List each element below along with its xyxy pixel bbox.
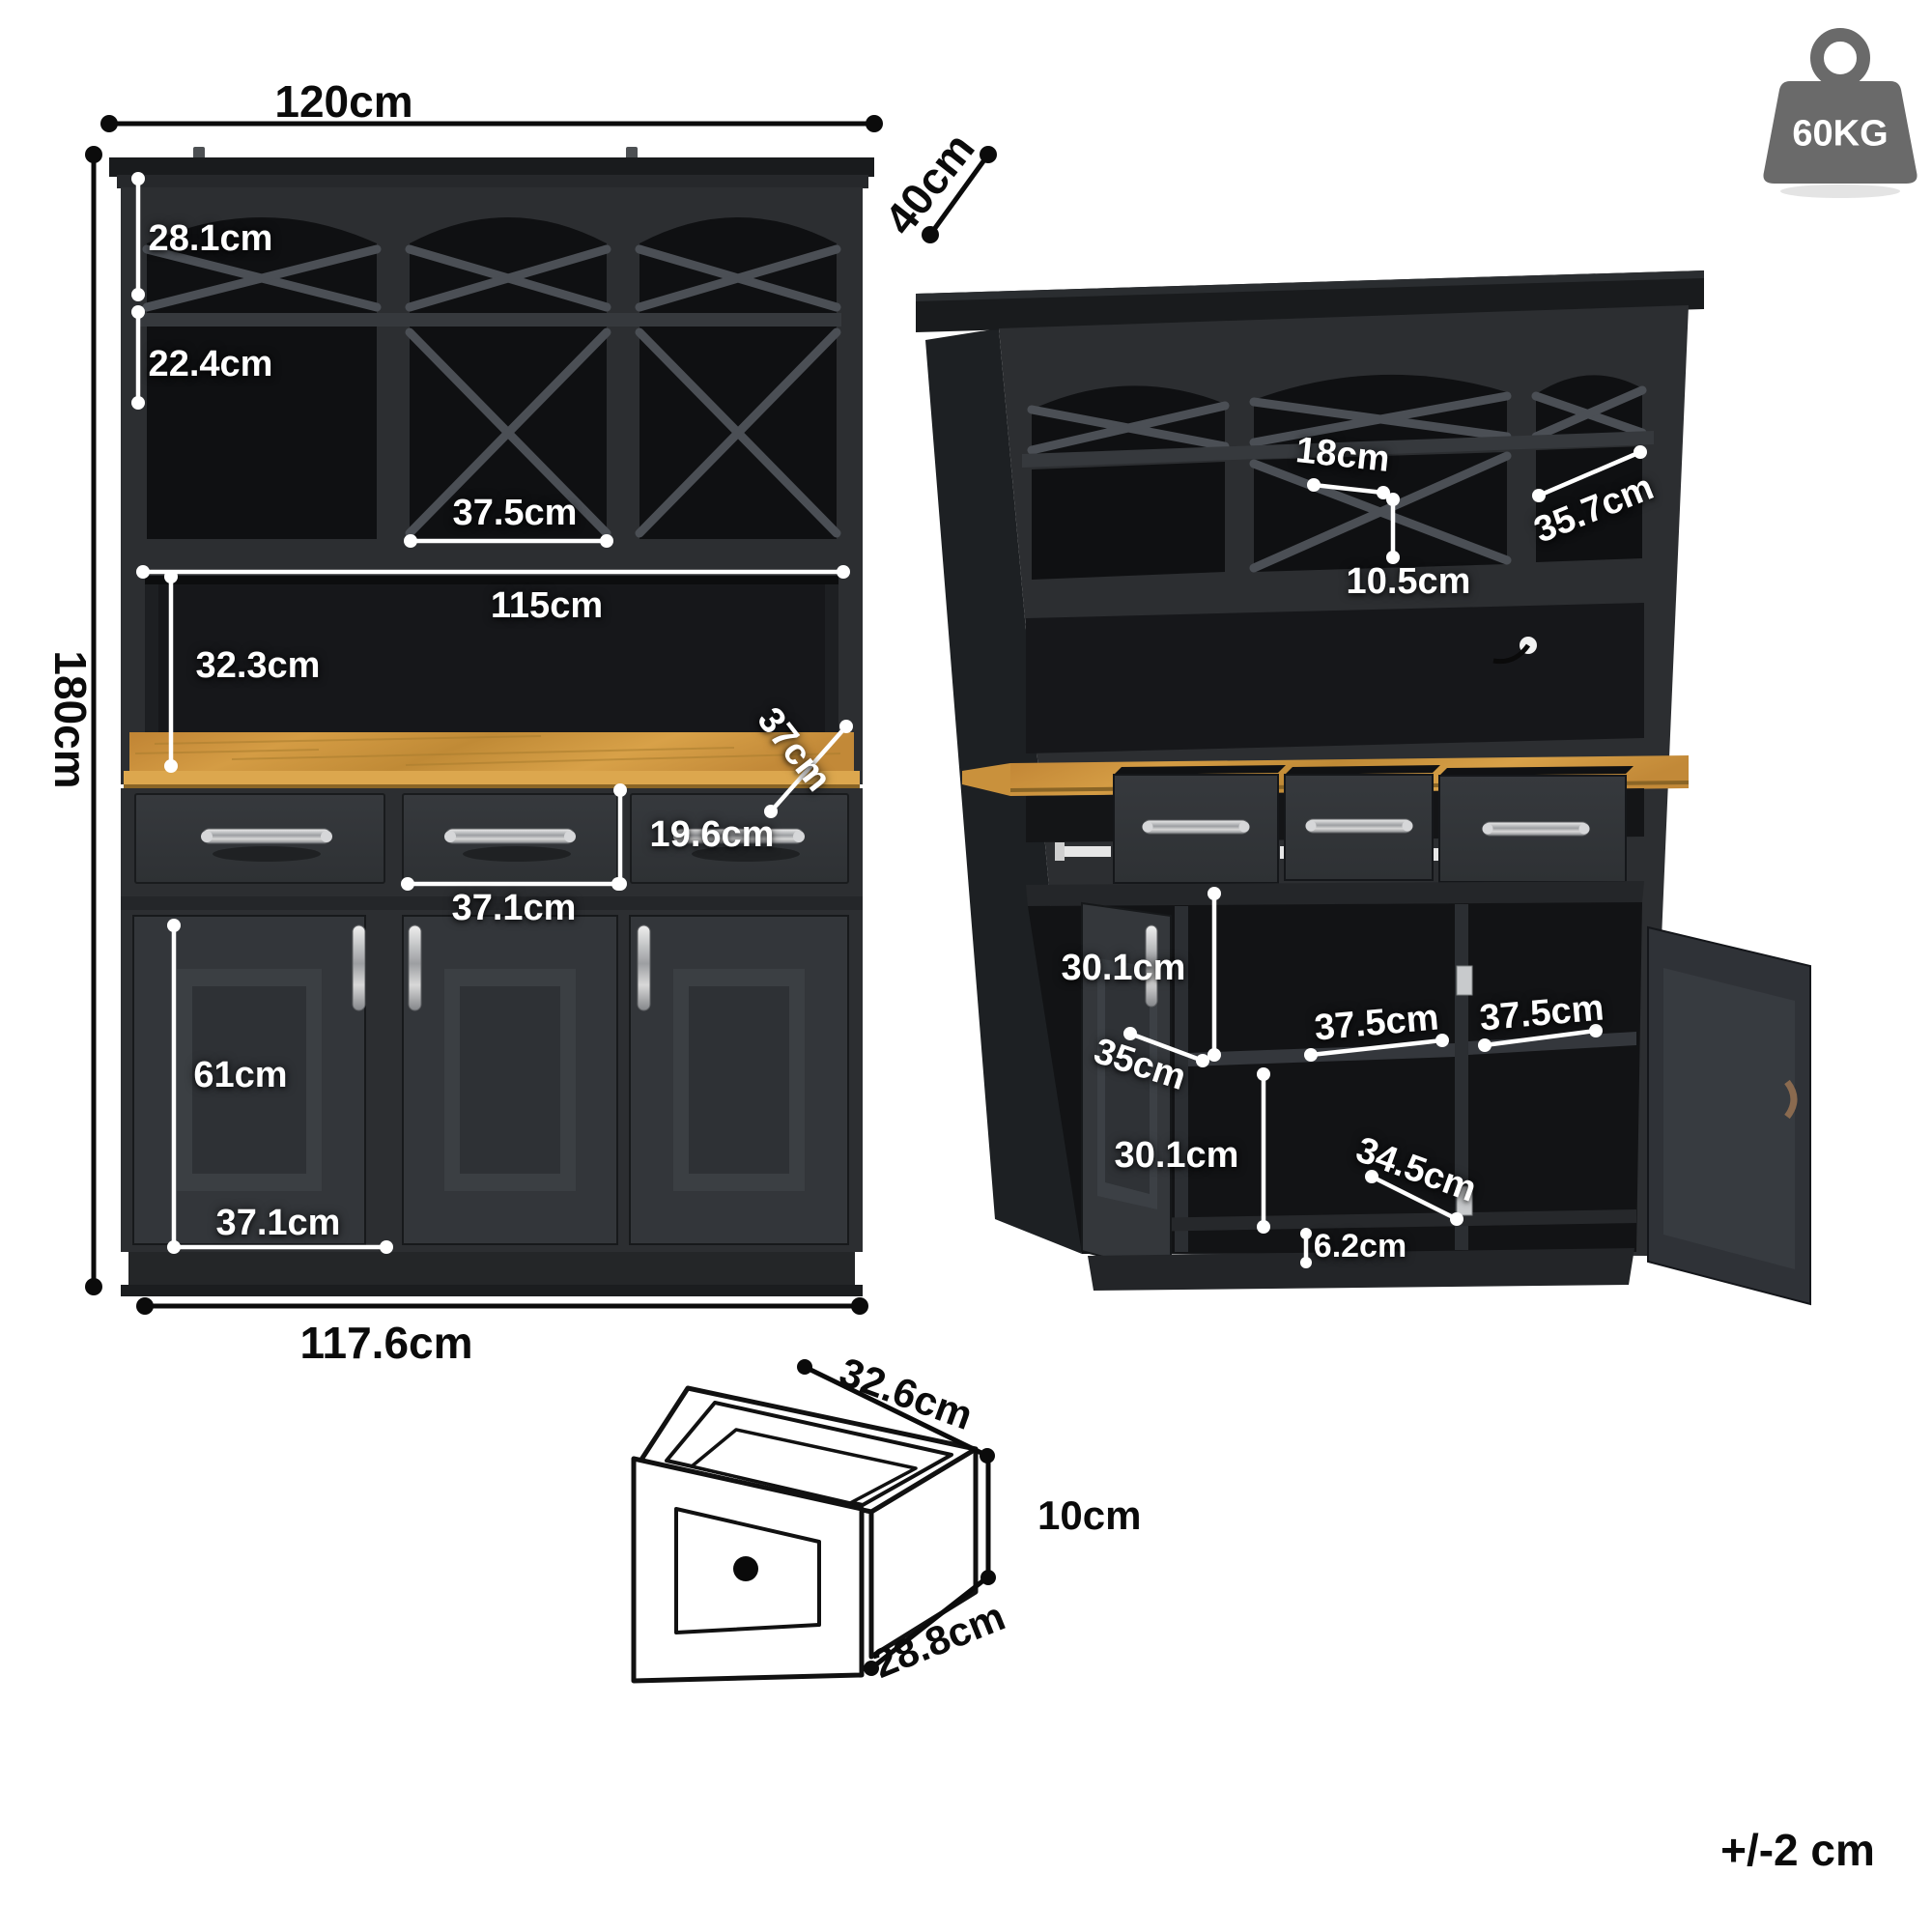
dim-wine-rack-height: 28.1cm xyxy=(149,220,273,257)
drawer-knob-icon xyxy=(733,1556,758,1581)
dim-base-width: 117.6cm xyxy=(299,1321,472,1365)
dim-drawer-height: 10cm xyxy=(1037,1495,1141,1536)
dim-lower-opening-height: 30.1cm xyxy=(1115,1137,1239,1174)
dim-wine-slot-width: 18cm xyxy=(1294,432,1392,478)
dim-upper-opening-height: 30.1cm xyxy=(1062,950,1186,986)
dim-middle-cubby-width: 37.5cm xyxy=(453,495,578,531)
dim-hutch-opening-height: 32.3cm xyxy=(196,647,321,684)
dim-cubby-height: 22.4cm xyxy=(149,346,273,383)
dim-front-top-width: 120cm xyxy=(274,79,412,124)
dim-wine-slot-height: 10.5cm xyxy=(1347,563,1471,600)
tolerance-note: +/-2 cm xyxy=(1720,1828,1875,1872)
dim-front-height: 180cm xyxy=(48,650,93,788)
side-open-right-door xyxy=(1648,927,1810,1304)
dim-door-height: 61cm xyxy=(193,1057,287,1094)
dim-hutch-opening-width: 115cm xyxy=(491,587,603,624)
dim-door-width: 37.1cm xyxy=(216,1205,341,1241)
dim-drawer-front-width: 37.1cm xyxy=(452,890,577,926)
drawer-slide-rail xyxy=(1061,846,1111,857)
weight-capacity-badge: 60KG xyxy=(1792,114,1888,156)
product-dimension-diagram: 120cm 180cm 28.1cm 22.4cm 37.5cm 115cm 3… xyxy=(0,0,1932,1932)
side-open-drawers xyxy=(1114,765,1634,883)
dim-plinth-height: 6.2cm xyxy=(1314,1230,1406,1263)
dim-drawer-front-height: 19.6cm xyxy=(650,816,775,853)
